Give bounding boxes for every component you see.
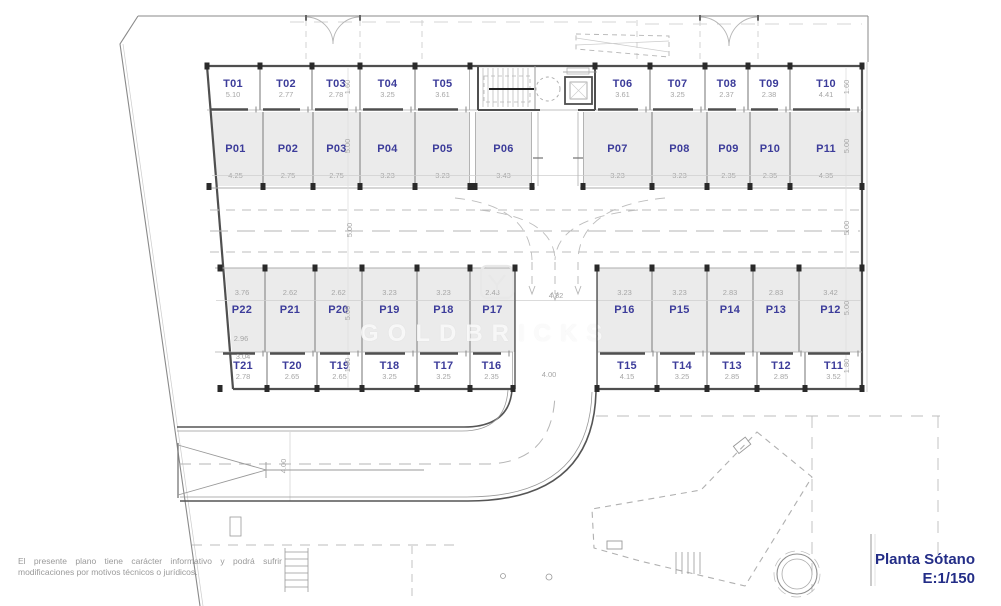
parking-space-P10: P102.35 (750, 112, 790, 186)
unit-dimension: 2.75 (264, 172, 312, 180)
unit-dimension: 2.38 (762, 91, 777, 99)
unit-label: P21 (280, 305, 300, 316)
unit-dimension: 4.41 (819, 91, 834, 99)
unit-label: T10 (816, 79, 836, 90)
parking-space-P09: P092.35 (707, 112, 750, 186)
unit-dimension: 4.35 (791, 172, 861, 180)
unit-label: P13 (766, 305, 786, 316)
unit-label: T04 (378, 79, 398, 90)
parking-space-P03: P032.75 (313, 112, 360, 186)
unit-dimension: 2.77 (279, 91, 294, 99)
dimension-text: 5.00 (843, 221, 851, 236)
storage-room-T07: T073.25 (650, 67, 705, 110)
dimension-text: 5.00 (344, 139, 352, 154)
unit-dimension: 2.85 (725, 373, 740, 381)
storage-room-T04: T043.25 (360, 67, 415, 110)
storage-room-T14: T143.25 (657, 352, 707, 390)
unit-dimension: 2.35 (484, 373, 499, 381)
storage-room-T08: T082.37 (705, 67, 748, 110)
unit-label: P08 (669, 144, 689, 155)
unit-dimension: 3.52 (826, 373, 841, 381)
parking-space-P04: P043.23 (360, 112, 415, 186)
unit-label: T21 (233, 361, 253, 372)
unit-dimension: 2.35 (751, 172, 789, 180)
unit-dimension: 2.65 (285, 373, 300, 381)
parking-space-P14: P142.83 (707, 268, 753, 352)
dimension-text: 1.60 (843, 80, 851, 95)
unit-label: P04 (377, 144, 397, 155)
parking-space-P20: P202.62 (315, 268, 362, 352)
unit-dimension: 3.42 (800, 289, 861, 297)
storage-room-T12: T122.85 (757, 352, 805, 390)
storage-room-T06: T063.61 (595, 67, 650, 110)
unit-label: P05 (432, 144, 452, 155)
parking-space-P18: P183.23 (417, 268, 470, 352)
unit-dimension: 3.25 (380, 91, 395, 99)
dimension-text: 5.00 (843, 301, 851, 316)
parking-space-P16: P163.23 (597, 268, 652, 352)
unit-dimension: 3.25 (670, 91, 685, 99)
unit-label: T02 (276, 79, 296, 90)
title-block: Planta Sótano E:1/150 (875, 550, 975, 588)
storage-room-T15: T154.15 (597, 352, 657, 390)
plan-scale: E:1/150 (875, 569, 975, 588)
unit-dimension: 2.83 (754, 289, 798, 297)
unit-dimension: 5.10 (226, 91, 241, 99)
unit-label: T05 (433, 79, 453, 90)
parking-space-P11: P114.35 (790, 112, 862, 186)
storage-room-T03: T032.78 (312, 67, 360, 110)
unit-dimension: 2.75 (314, 172, 359, 180)
unit-dimension: 2.65 (332, 373, 347, 381)
unit-label: P15 (669, 305, 689, 316)
storage-room-T02: T022.77 (260, 67, 312, 110)
unit-label: T14 (672, 361, 692, 372)
parking-space-P17: P172.43 (470, 268, 515, 352)
unit-dimension: 2.35 (708, 172, 749, 180)
unit-label: T15 (617, 361, 637, 372)
dimension-text: 4.00 (280, 459, 288, 474)
floor-plan-canvas: T015.10T022.77T032.78T043.25T053.61T063.… (0, 0, 1001, 606)
dimension-text: 2.96 (234, 335, 249, 343)
storage-room-T16: T162.35 (470, 352, 513, 390)
unit-dimension: 3.61 (435, 91, 450, 99)
unit-label: T16 (482, 361, 502, 372)
parking-space-P06: P063.43 (475, 112, 532, 186)
storage-room-T17: T173.25 (417, 352, 470, 390)
unit-label: P14 (720, 305, 740, 316)
unit-label: P16 (614, 305, 634, 316)
unit-label: T17 (434, 361, 454, 372)
unit-dimension: 3.23 (363, 289, 416, 297)
unit-dimension: 3.25 (382, 373, 397, 381)
unit-dimension: 2.37 (719, 91, 734, 99)
storage-room-T18: T183.25 (362, 352, 417, 390)
unit-label: P19 (379, 305, 399, 316)
unit-dimension: 3.25 (675, 373, 690, 381)
storage-room-T13: T132.85 (707, 352, 757, 390)
unit-dimension: 3.25 (436, 373, 451, 381)
plan-title: Planta Sótano (875, 550, 975, 569)
unit-label: T06 (613, 79, 633, 90)
storage-room-T01: T015.10 (207, 67, 260, 110)
unit-label: P17 (482, 305, 502, 316)
parking-space-P13: P132.83 (753, 268, 799, 352)
unit-label: P11 (816, 144, 836, 155)
unit-dimension: 2.62 (266, 289, 314, 297)
dimension-text: 4.00 (542, 371, 557, 379)
parking-space-P07: P073.23 (583, 112, 652, 186)
dimension-text: 1.60 (344, 80, 352, 95)
unit-dimension: 2.78 (236, 373, 251, 381)
unit-label: T01 (223, 79, 243, 90)
storage-room-T09: T092.38 (748, 67, 790, 110)
unit-label: T13 (722, 361, 742, 372)
unit-dimension: 2.83 (708, 289, 752, 297)
unit-dimension: 3.23 (416, 172, 469, 180)
storage-room-T20: T202.65 (267, 352, 317, 390)
parking-space-P12: P123.42 (799, 268, 862, 352)
unit-dimension: 3.23 (598, 289, 651, 297)
storage-room-T19: T192.65 (317, 352, 362, 390)
dimension-text: 1.60 (344, 358, 352, 373)
unit-dimension: 4.25 (209, 172, 262, 180)
dimension-text: 1.80 (843, 359, 851, 374)
unit-dimension: 3.23 (418, 289, 469, 297)
unit-dimension: 3.23 (584, 172, 651, 180)
storage-room-T10: T104.41 (790, 67, 862, 110)
unit-dimension: 3.23 (653, 289, 706, 297)
parking-space-P01: P014.25 (209, 112, 263, 186)
unit-label: T09 (759, 79, 779, 90)
unit-label: P06 (493, 144, 513, 155)
disclaimer-text: El presente plano tiene carácter informa… (18, 556, 282, 578)
parking-space-P08: P083.23 (652, 112, 707, 186)
unit-label: P01 (225, 144, 245, 155)
parking-space-P02: P022.75 (263, 112, 313, 186)
unit-label: T11 (824, 361, 843, 372)
unit-label: P10 (760, 144, 780, 155)
unit-label: T20 (282, 361, 302, 372)
parking-space-P15: P153.23 (652, 268, 707, 352)
unit-label: T12 (771, 361, 791, 372)
unit-label: P07 (607, 144, 627, 155)
unit-dimension: 3.61 (615, 91, 630, 99)
dimension-text: 5.00 (843, 139, 851, 154)
unit-dimension: 3.43 (476, 172, 531, 180)
dimension-text: 4.82 (549, 292, 564, 300)
unit-dimension: 3.23 (361, 172, 414, 180)
dimension-text: 5.00 (346, 223, 354, 238)
unit-dimension: 2.62 (316, 289, 361, 297)
parking-space-P05: P053.23 (415, 112, 470, 186)
unit-dimension: 3.23 (653, 172, 706, 180)
parking-space-P21: P212.62 (265, 268, 315, 352)
unit-label: T18 (380, 361, 400, 372)
unit-dimension: 4.15 (620, 373, 635, 381)
unit-dimension: 3.76 (220, 289, 264, 297)
storage-room-T11: T113.52 (805, 352, 862, 390)
unit-dimension: 2.43 (471, 289, 514, 297)
unit-dimension: 2.78 (329, 91, 344, 99)
unit-label: T07 (668, 79, 688, 90)
dimension-text: 5.00 (344, 306, 352, 321)
parking-space-P19: P193.23 (362, 268, 417, 352)
unit-label: P12 (820, 305, 840, 316)
unit-label: T08 (717, 79, 737, 90)
unit-label: P09 (718, 144, 738, 155)
unit-label: P18 (433, 305, 453, 316)
unit-dimension: 2.85 (774, 373, 789, 381)
storage-room-T05: T053.61 (415, 67, 470, 110)
unit-label: P02 (278, 144, 298, 155)
dimension-text: 3.04 (236, 353, 251, 361)
unit-label: P22 (232, 305, 252, 316)
